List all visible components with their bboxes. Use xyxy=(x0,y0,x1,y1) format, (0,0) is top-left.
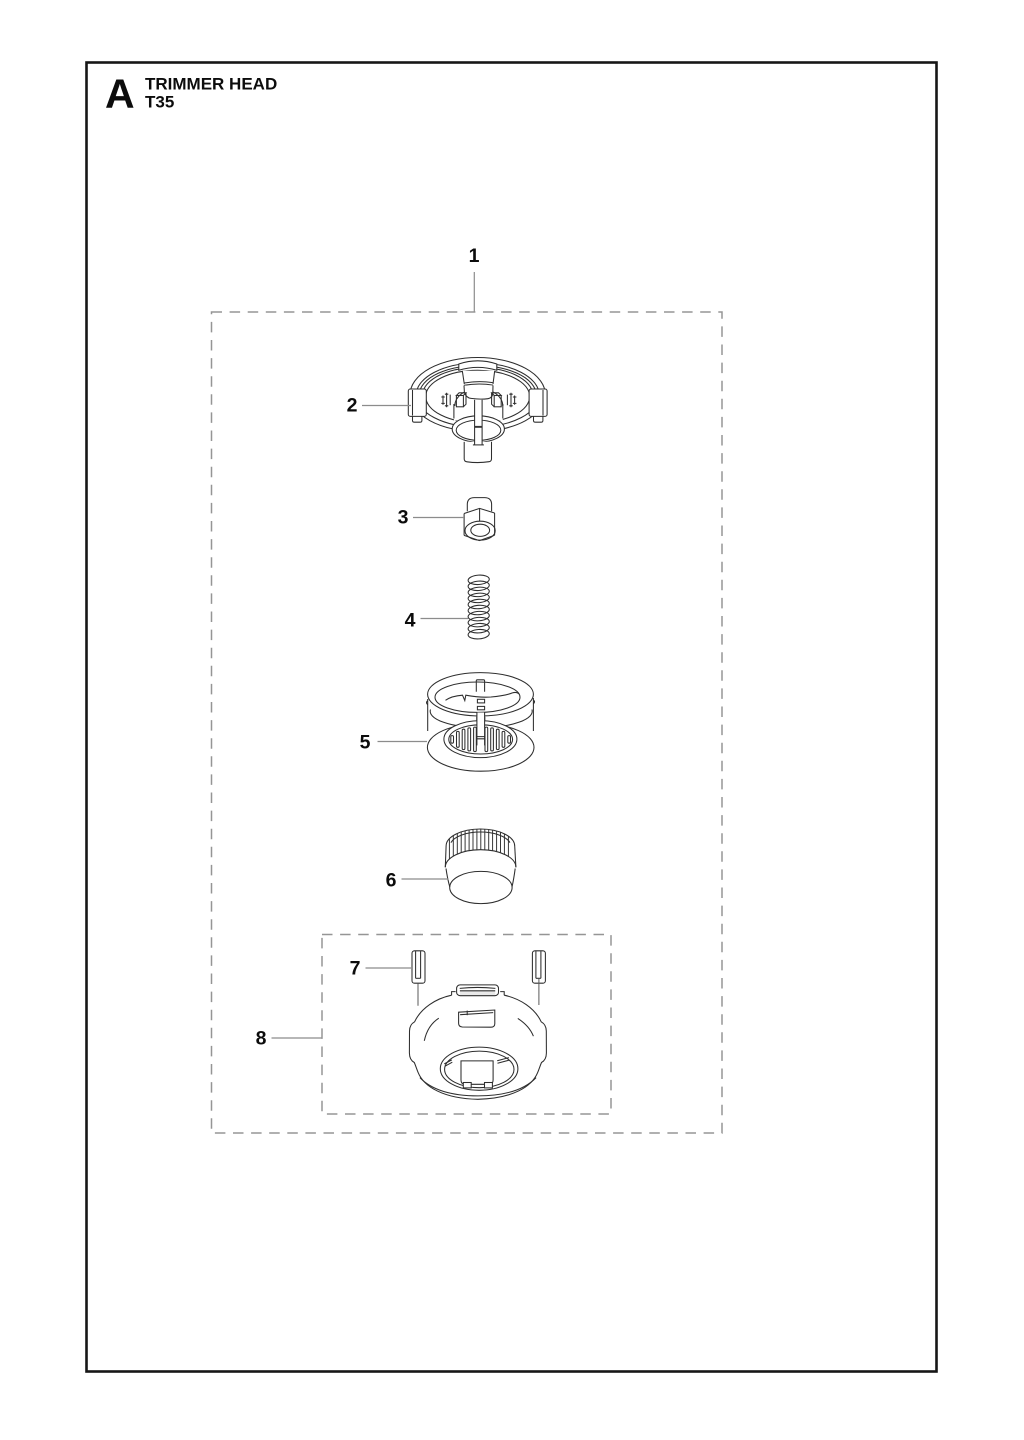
svg-text:TRIMMER HEAD: TRIMMER HEAD xyxy=(145,75,277,94)
svg-text:2: 2 xyxy=(347,395,358,417)
svg-text:6: 6 xyxy=(386,870,397,892)
svg-text:3: 3 xyxy=(398,507,409,529)
svg-text:8: 8 xyxy=(256,1028,267,1050)
svg-text:T35: T35 xyxy=(145,93,174,112)
svg-text:4: 4 xyxy=(405,610,416,632)
svg-text:1: 1 xyxy=(469,245,480,267)
svg-text:A: A xyxy=(105,71,135,117)
svg-text:7: 7 xyxy=(350,958,361,980)
svg-text:5: 5 xyxy=(360,732,371,754)
